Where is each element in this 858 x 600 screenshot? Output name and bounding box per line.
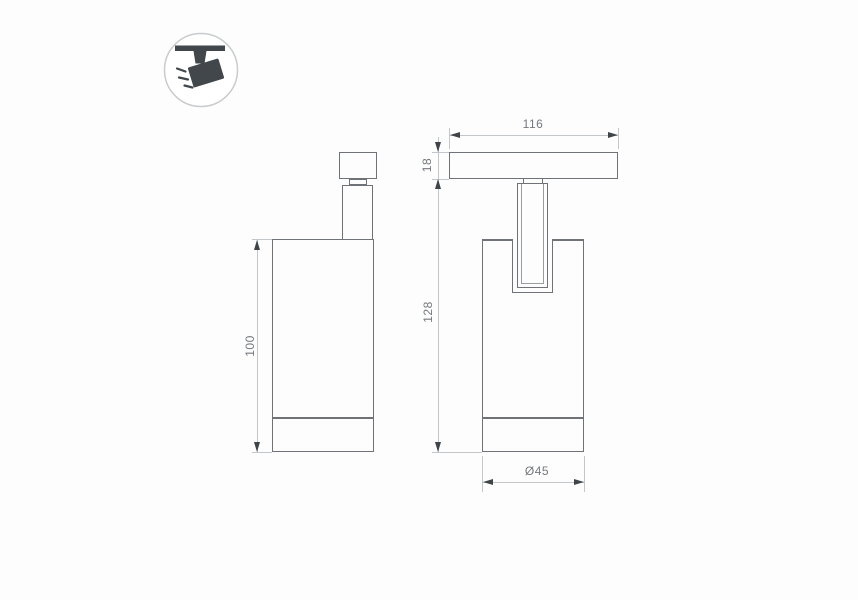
track-spotlight-icon-svg [163,32,239,108]
ext-line-plate-top [432,152,449,153]
ext-line-body-bottom [432,452,482,453]
front-view-trim-line [482,417,584,419]
side-view-body [272,239,374,452]
side-view-track-adapter [339,152,377,179]
dim-label-body-diameter: Ø45 [507,464,567,478]
dim-label-plate-width: 116 [503,117,563,131]
arrow-down-icon [435,142,441,152]
arrow-down-icon [435,442,441,452]
arrow-down-icon [254,442,260,452]
icon-track-bar [175,46,225,52]
arrow-left-icon [450,132,460,138]
dim-line-side-height [257,239,258,452]
front-view-body-top-edge-right [552,239,584,241]
arrow-up-icon [254,240,260,250]
dim-line-diameter [482,482,584,483]
dim-label-side-body-height: 100 [243,326,257,366]
arrow-left-icon [483,479,493,485]
track-spotlight-icon [163,32,239,108]
ext-line-dia-right [584,456,585,492]
arrow-right-icon [574,479,584,485]
side-view-stem [342,185,373,240]
front-view-body [482,239,584,452]
dim-label-overall-height: 128 [421,292,435,332]
ext-line-side-bottom [252,452,272,453]
ext-line-dia-left [482,456,483,492]
front-view-body-top-edge-left [482,239,513,241]
arrow-right-icon [608,132,618,138]
arrow-up-icon [435,179,441,189]
dim-line-plate-width [449,135,618,136]
technical-drawing-canvas: 100 116 18 128 Ø45 [0,0,858,600]
dim-label-plate-thickness: 18 [420,150,434,180]
front-view-track-plate [449,152,618,179]
ext-line-116-right [618,128,619,149]
icon-stem [194,51,207,64]
side-view-trim-line [272,417,374,419]
